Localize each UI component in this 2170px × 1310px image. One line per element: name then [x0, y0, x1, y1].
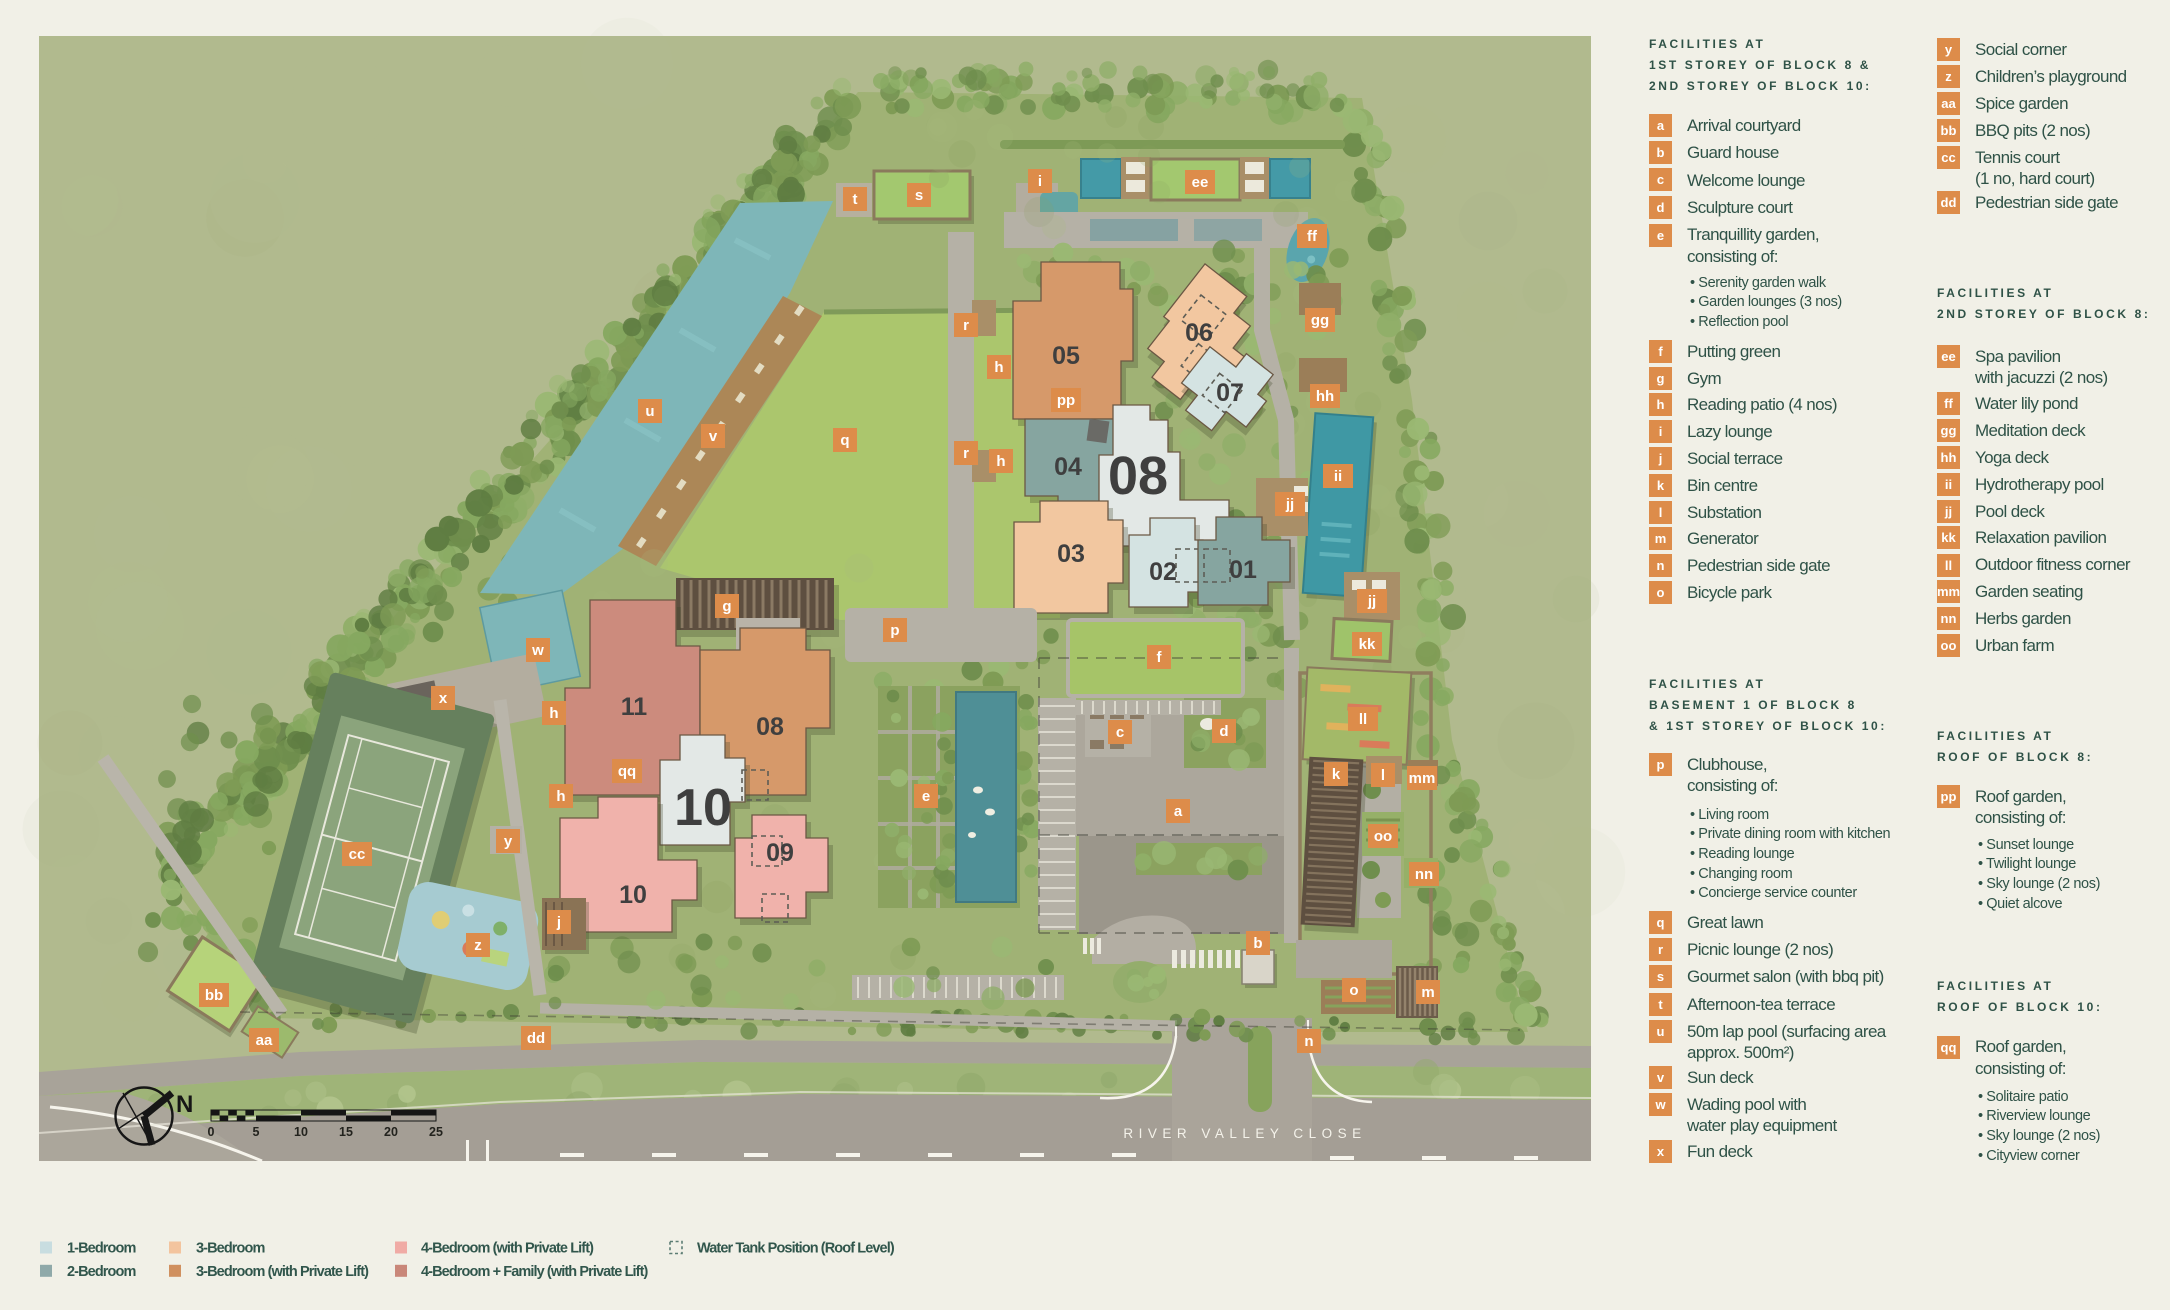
svg-text:a: a	[1174, 803, 1183, 820]
svg-text:pp: pp	[1941, 789, 1957, 804]
svg-text:Outdoor fitness corner: Outdoor fitness corner	[1975, 555, 2131, 574]
svg-text:z: z	[1945, 69, 1952, 84]
svg-text:• Changing room: • Changing room	[1690, 866, 1793, 882]
svg-text:ff: ff	[1944, 396, 1953, 411]
svg-text:Bicycle park: Bicycle park	[1687, 583, 1773, 602]
svg-text:l: l	[1659, 505, 1663, 520]
svg-text:s: s	[1657, 969, 1664, 984]
svg-text:q: q	[840, 432, 849, 449]
svg-text:m: m	[1421, 984, 1434, 1001]
svg-text:• Riverview lounge: • Riverview lounge	[1978, 1108, 2091, 1124]
svg-text:ll: ll	[1359, 711, 1367, 728]
svg-text:u: u	[1657, 1024, 1665, 1039]
svg-text:BBQ pits (2 nos): BBQ pits (2 nos)	[1975, 121, 2090, 140]
svg-text:d: d	[1657, 200, 1665, 215]
svg-text:FACILITIES AT: FACILITIES AT	[1937, 729, 2053, 743]
svg-text:2ND STOREY OF BLOCK 8:: 2ND STOREY OF BLOCK 8:	[1937, 307, 2150, 321]
svg-text:• Concierge service counter: • Concierge service counter	[1690, 885, 1857, 901]
svg-text:s: s	[915, 187, 923, 204]
svg-text:Lazy lounge: Lazy lounge	[1687, 422, 1772, 441]
svg-text:oo: oo	[1941, 638, 1957, 653]
svg-text:• Solitaire patio: • Solitaire patio	[1978, 1089, 2068, 1105]
svg-text:Fun deck: Fun deck	[1687, 1142, 1753, 1161]
svg-text:04: 04	[1054, 453, 1082, 481]
svg-text:Gym: Gym	[1687, 369, 1722, 388]
svg-text:bb: bb	[205, 987, 223, 1004]
svg-text:02: 02	[1149, 558, 1177, 586]
svg-text:Reading patio (4 nos): Reading patio (4 nos)	[1687, 395, 1837, 414]
svg-text:N: N	[176, 1091, 193, 1118]
svg-text:• Quiet alcove: • Quiet alcove	[1978, 896, 2062, 912]
svg-text:jj: jj	[1285, 496, 1294, 513]
svg-text:• Reflection pool: • Reflection pool	[1690, 314, 1788, 330]
svg-text:20: 20	[384, 1125, 398, 1139]
svg-text:(1 no, hard court): (1 no, hard court)	[1975, 169, 2095, 188]
svg-text:kk: kk	[1359, 636, 1376, 653]
svg-text:Pool deck: Pool deck	[1975, 502, 2045, 521]
svg-text:Roof garden,: Roof garden,	[1975, 787, 2066, 806]
svg-text:with jacuzzi (2 nos): with jacuzzi (2 nos)	[1974, 368, 2108, 387]
svg-text:Urban farm: Urban farm	[1975, 636, 2054, 655]
svg-text:3-Bedroom (with Private Lift): 3-Bedroom (with Private Lift)	[196, 1264, 369, 1280]
svg-text:• Cityview corner: • Cityview corner	[1978, 1148, 2080, 1164]
svg-text:• Garden lounges (3 nos): • Garden lounges (3 nos)	[1690, 294, 1842, 310]
svg-text:4-Bedroom + Family (with Priva: 4-Bedroom + Family (with Private Lift)	[421, 1264, 649, 1280]
svg-text:ff: ff	[1307, 228, 1318, 245]
svg-text:ee: ee	[1941, 349, 1955, 364]
svg-text:Social corner: Social corner	[1975, 40, 2067, 59]
svg-text:• Twilight lounge: • Twilight lounge	[1978, 856, 2076, 872]
svg-text:kk: kk	[1941, 530, 1956, 545]
svg-text:Clubhouse,: Clubhouse,	[1687, 755, 1767, 774]
svg-text:y: y	[504, 833, 513, 850]
svg-text:f: f	[1658, 344, 1663, 359]
svg-text:dd: dd	[1941, 195, 1957, 210]
svg-text:c: c	[1116, 724, 1124, 741]
svg-text:09: 09	[766, 839, 794, 867]
svg-text:Generator: Generator	[1687, 529, 1759, 548]
svg-text:r: r	[963, 317, 969, 334]
svg-text:25: 25	[429, 1125, 443, 1139]
svg-text:h: h	[996, 453, 1005, 470]
svg-text:Herbs garden: Herbs garden	[1975, 609, 2071, 628]
svg-text:mm: mm	[1937, 584, 1960, 599]
svg-text:a: a	[1657, 118, 1665, 133]
svg-text:10: 10	[619, 881, 647, 909]
svg-text:& 1ST STOREY OF BLOCK 10:: & 1ST STOREY OF BLOCK 10:	[1649, 719, 1887, 733]
svg-text:• Sunset lounge: • Sunset lounge	[1978, 837, 2074, 853]
svg-text:g: g	[722, 598, 731, 615]
svg-text:water play equipment: water play equipment	[1686, 1116, 1837, 1135]
svg-text:m: m	[1655, 531, 1667, 546]
svg-text:cc: cc	[349, 846, 366, 863]
svg-text:03: 03	[1057, 540, 1085, 568]
svg-text:ii: ii	[1945, 477, 1952, 492]
svg-text:50m lap pool (surfacing area: 50m lap pool (surfacing area	[1687, 1022, 1887, 1041]
svg-text:consisting of:: consisting of:	[1687, 776, 1778, 795]
svg-text:l: l	[1381, 767, 1385, 784]
svg-text:08: 08	[1108, 446, 1168, 506]
svg-text:Spa pavilion: Spa pavilion	[1975, 347, 2061, 366]
svg-text:• Reading lounge: • Reading lounge	[1690, 846, 1795, 862]
svg-text:05: 05	[1052, 342, 1080, 370]
svg-text:g: g	[1657, 371, 1665, 386]
svg-text:d: d	[1219, 723, 1228, 740]
svg-text:2ND STOREY OF BLOCK 10:: 2ND STOREY OF BLOCK 10:	[1649, 79, 1872, 93]
svg-text:Yoga deck: Yoga deck	[1975, 448, 2049, 467]
svg-text:ee: ee	[1192, 174, 1209, 191]
svg-text:aa: aa	[256, 1032, 273, 1049]
svg-text:o: o	[1657, 585, 1665, 600]
svg-text:Putting green: Putting green	[1687, 342, 1780, 361]
svg-text:FACILITIES AT: FACILITIES AT	[1937, 979, 2053, 993]
svg-text:q: q	[1657, 915, 1665, 930]
svg-text:01: 01	[1229, 556, 1257, 584]
svg-text:v: v	[1657, 1070, 1665, 1085]
svg-text:v: v	[709, 428, 718, 445]
svg-text:o: o	[1349, 982, 1358, 999]
svg-text:Water lily pond: Water lily pond	[1975, 394, 2078, 413]
svg-text:4-Bedroom (with Private Lift): 4-Bedroom (with Private Lift)	[421, 1241, 594, 1257]
svg-text:ROOF OF BLOCK 8:: ROOF OF BLOCK 8:	[1937, 750, 2093, 764]
svg-text:Picnic lounge (2 nos): Picnic lounge (2 nos)	[1687, 940, 1833, 959]
svg-text:consisting of:: consisting of:	[1975, 1059, 2066, 1078]
svg-text:Gourmet salon (with bbq pit): Gourmet salon (with bbq pit)	[1687, 967, 1884, 986]
svg-text:Water Tank Position (Roof Leve: Water Tank Position (Roof Level)	[697, 1241, 895, 1257]
svg-text:1-Bedroom: 1-Bedroom	[67, 1241, 135, 1257]
svg-text:1ST STOREY OF BLOCK 8 &: 1ST STOREY OF BLOCK 8 &	[1649, 58, 1871, 72]
svg-text:p: p	[890, 622, 899, 639]
svg-text:i: i	[1038, 173, 1042, 190]
svg-text:n: n	[1657, 558, 1665, 573]
svg-text:Wading pool with: Wading pool with	[1687, 1095, 1806, 1114]
svg-text:qq: qq	[618, 763, 636, 780]
svg-text:Garden seating: Garden seating	[1975, 582, 2083, 601]
svg-text:u: u	[645, 403, 654, 420]
svg-text:r: r	[1658, 942, 1663, 957]
svg-text:RIVER VALLEY CLOSE: RIVER VALLEY CLOSE	[1123, 1126, 1366, 1141]
svg-text:j: j	[556, 914, 561, 931]
svg-text:FACILITIES AT: FACILITIES AT	[1649, 677, 1765, 691]
svg-text:Relaxation pavilion: Relaxation pavilion	[1975, 528, 2106, 547]
svg-text:• Living room: • Living room	[1690, 807, 1769, 823]
svg-text:3-Bedroom: 3-Bedroom	[196, 1241, 264, 1257]
svg-text:5: 5	[253, 1125, 260, 1139]
svg-text:z: z	[474, 937, 482, 954]
svg-text:pp: pp	[1057, 392, 1075, 409]
svg-text:08: 08	[756, 713, 784, 741]
svg-text:Sculpture court: Sculpture court	[1687, 198, 1793, 217]
svg-text:consisting of:: consisting of:	[1975, 808, 2066, 827]
svg-text:bb: bb	[1941, 123, 1957, 138]
svg-text:hh: hh	[1941, 450, 1957, 465]
svg-text:Pedestrian side gate: Pedestrian side gate	[1975, 193, 2118, 212]
svg-text:nn: nn	[1415, 866, 1433, 883]
svg-text:07: 07	[1216, 379, 1244, 407]
svg-text:10: 10	[294, 1125, 308, 1139]
svg-text:Bin centre: Bin centre	[1687, 476, 1758, 495]
svg-text:cc: cc	[1941, 150, 1955, 165]
svg-text:Guard house: Guard house	[1687, 143, 1779, 162]
svg-text:Meditation deck: Meditation deck	[1975, 421, 2086, 440]
svg-text:Afternoon-tea terrace: Afternoon-tea terrace	[1687, 995, 1835, 1014]
svg-text:gg: gg	[1941, 423, 1957, 438]
svg-text:Spice garden: Spice garden	[1975, 94, 2068, 113]
svg-text:BASEMENT 1 OF BLOCK 8: BASEMENT 1 OF BLOCK 8	[1649, 698, 1857, 712]
svg-text:h: h	[549, 705, 558, 722]
svg-text:Children’s playground: Children’s playground	[1975, 67, 2127, 86]
svg-text:ii: ii	[1334, 468, 1342, 485]
svg-text:Tranquillity garden,: Tranquillity garden,	[1687, 225, 1819, 244]
svg-text:b: b	[1657, 145, 1665, 160]
svg-text:06: 06	[1185, 319, 1213, 347]
svg-text:gg: gg	[1311, 312, 1329, 329]
svg-text:• Sky lounge (2 nos): • Sky lounge (2 nos)	[1978, 876, 2100, 892]
svg-text:approx. 500m²): approx. 500m²)	[1687, 1043, 1794, 1062]
svg-text:0: 0	[208, 1125, 215, 1139]
svg-text:k: k	[1657, 478, 1665, 493]
svg-text:w: w	[1654, 1097, 1666, 1112]
svg-text:h: h	[994, 359, 1003, 376]
svg-text:aa: aa	[1941, 96, 1956, 111]
svg-text:k: k	[1332, 766, 1341, 783]
svg-text:Sun deck: Sun deck	[1687, 1068, 1754, 1087]
svg-text:x: x	[439, 690, 448, 707]
svg-text:Pedestrian side gate: Pedestrian side gate	[1687, 556, 1830, 575]
svg-text:15: 15	[339, 1125, 353, 1139]
svg-text:Hydrotherapy pool: Hydrotherapy pool	[1975, 475, 2104, 494]
svg-text:• Private dining room with kit: • Private dining room with kitchen	[1690, 826, 1891, 842]
svg-text:b: b	[1253, 935, 1262, 952]
svg-text:mm: mm	[1409, 770, 1436, 787]
svg-text:qq: qq	[1941, 1040, 1957, 1055]
svg-text:ll: ll	[1945, 558, 1952, 573]
svg-text:• Sky lounge (2 nos): • Sky lounge (2 nos)	[1978, 1128, 2100, 1144]
svg-text:i: i	[1659, 424, 1663, 439]
svg-text:e: e	[1657, 228, 1664, 243]
svg-text:• Serenity garden walk: • Serenity garden walk	[1690, 275, 1827, 291]
svg-text:2-Bedroom: 2-Bedroom	[67, 1264, 135, 1280]
svg-text:jj: jj	[1367, 593, 1376, 610]
svg-text:x: x	[1657, 1144, 1665, 1159]
svg-text:Roof garden,: Roof garden,	[1975, 1037, 2066, 1056]
svg-text:nn: nn	[1941, 611, 1957, 626]
svg-text:10: 10	[674, 779, 732, 837]
svg-text:FACILITIES AT: FACILITIES AT	[1649, 37, 1765, 51]
svg-text:r: r	[963, 445, 969, 462]
svg-text:h: h	[1657, 397, 1665, 412]
svg-text:t: t	[853, 191, 858, 208]
svg-text:p: p	[1657, 757, 1665, 772]
svg-text:Tennis court: Tennis court	[1975, 148, 2060, 167]
svg-text:jj: jj	[1944, 504, 1952, 519]
svg-text:n: n	[1304, 1033, 1313, 1050]
svg-text:Substation: Substation	[1687, 503, 1761, 522]
svg-text:hh: hh	[1316, 388, 1334, 405]
svg-text:y: y	[1945, 42, 1953, 57]
svg-text:w: w	[531, 642, 544, 659]
svg-text:c: c	[1657, 172, 1664, 187]
svg-text:ROOF OF BLOCK 10:: ROOF OF BLOCK 10:	[1937, 1000, 2103, 1014]
svg-text:dd: dd	[527, 1030, 545, 1047]
svg-text:Arrival courtyard: Arrival courtyard	[1687, 116, 1801, 135]
svg-text:j: j	[1658, 451, 1663, 466]
svg-text:t: t	[1658, 997, 1663, 1012]
svg-text:FACILITIES AT: FACILITIES AT	[1937, 286, 2053, 300]
svg-text:11: 11	[621, 693, 648, 721]
svg-text:consisting of:: consisting of:	[1687, 247, 1778, 266]
svg-text:e: e	[922, 788, 930, 805]
svg-text:Great lawn: Great lawn	[1687, 913, 1763, 932]
svg-text:oo: oo	[1374, 828, 1392, 845]
svg-text:Social terrace: Social terrace	[1687, 449, 1783, 468]
svg-text:Welcome lounge: Welcome lounge	[1687, 171, 1805, 190]
svg-text:h: h	[556, 788, 565, 805]
